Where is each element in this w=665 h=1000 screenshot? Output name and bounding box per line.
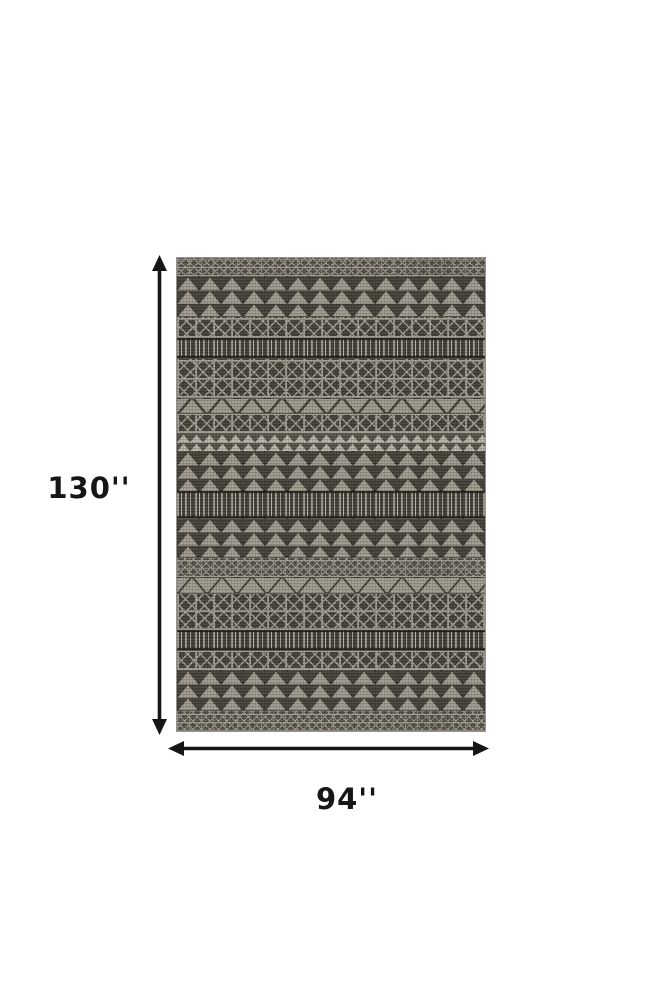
rug-band-fringe <box>177 338 485 358</box>
height-dimension-label: 130'' <box>28 471 150 505</box>
rug-band-zigzag <box>177 577 485 593</box>
rug-band-lattice <box>177 258 485 276</box>
rug-band-fringe <box>177 630 485 650</box>
rug-band-smalltri <box>177 433 485 451</box>
rug-band-triangles <box>177 670 485 710</box>
rug-band-lattice <box>177 557 485 577</box>
rug-band-xbox <box>177 593 485 630</box>
rug-image <box>177 258 485 731</box>
rug-band-fringe <box>177 491 485 518</box>
product-dimension-diagram: 130'' 94'' <box>0 0 665 1000</box>
horizontal-double-arrow-icon <box>167 737 490 760</box>
vertical-double-arrow-icon <box>148 254 171 736</box>
rug-band-xbox <box>177 358 485 398</box>
rug-band-xbox <box>177 650 485 670</box>
width-dimension-label: 94'' <box>286 782 408 816</box>
rug-band-lattice <box>177 710 485 731</box>
rug-band-triangles <box>177 518 485 557</box>
rug-band-xbox <box>177 316 485 338</box>
rug-band-triangles <box>177 451 485 491</box>
rug-band-xbox <box>177 413 485 433</box>
rug-band-triangles <box>177 276 485 316</box>
rug-band-zigzag <box>177 398 485 413</box>
